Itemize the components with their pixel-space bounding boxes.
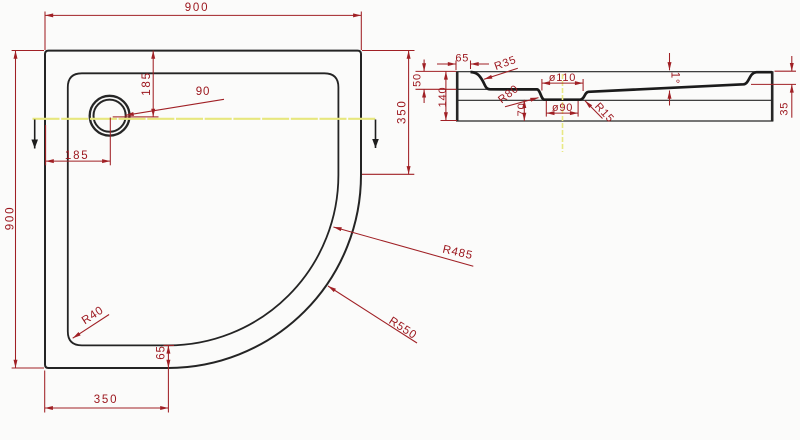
- svg-text:65: 65: [155, 345, 167, 359]
- svg-text:350: 350: [397, 99, 409, 124]
- svg-text:185: 185: [141, 71, 153, 96]
- svg-text:70: 70: [516, 102, 528, 116]
- svg-text:185: 185: [65, 150, 90, 162]
- svg-text:ø90: ø90: [552, 102, 573, 114]
- svg-text:140: 140: [437, 87, 449, 108]
- svg-text:65: 65: [455, 53, 469, 65]
- svg-text:900: 900: [5, 206, 17, 231]
- svg-text:90: 90: [196, 86, 210, 98]
- svg-text:900: 900: [185, 2, 210, 14]
- svg-text:1°: 1°: [669, 72, 681, 85]
- svg-text:ø110: ø110: [549, 72, 576, 84]
- svg-text:350: 350: [94, 394, 119, 406]
- svg-text:35: 35: [779, 102, 791, 116]
- svg-text:50: 50: [412, 73, 424, 87]
